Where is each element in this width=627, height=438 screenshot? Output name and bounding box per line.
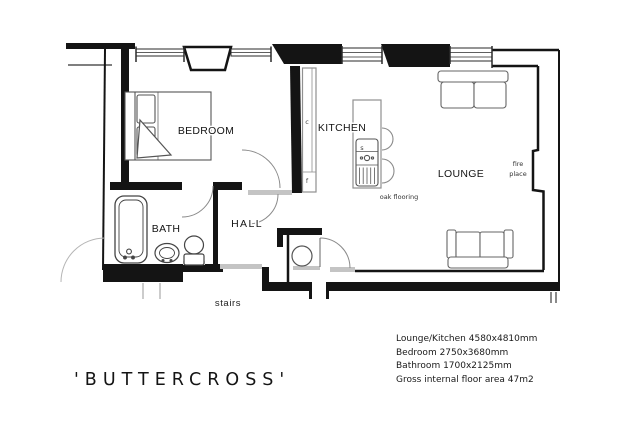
floor-plan-canvas: BEDROOM KITCHEN LOUNGE BATH HALL stairs … <box>0 0 627 438</box>
bathtub-drain <box>127 249 132 254</box>
bedroom-door-swing <box>242 150 280 188</box>
lobby-door-swing <box>320 238 350 268</box>
room-label-bedroom: BEDROOM <box>178 125 234 137</box>
bath-door-swing <box>182 186 213 217</box>
bathtub-tap <box>124 256 127 259</box>
wall-lobby-step <box>277 235 283 247</box>
counter-code-c: c <box>305 118 309 126</box>
sofa-bottom <box>447 230 513 268</box>
breakfast-stool <box>382 159 394 183</box>
dimension-notes: Lounge/Kitchen 4580x4810mm Bedroom 2750x… <box>396 333 537 387</box>
room-label-kitchen: KITCHEN <box>318 122 366 134</box>
bathtub-tap <box>132 256 135 259</box>
stairs-threshold <box>220 264 262 269</box>
wall-bath-hall-divider <box>213 190 218 267</box>
sofa-cushion <box>474 82 506 108</box>
sofa-cushion <box>480 232 504 258</box>
room-label-hall: HALL <box>231 218 263 230</box>
stairs-label: stairs <box>215 298 241 309</box>
exterior-door-swing <box>61 238 105 282</box>
lounge-window <box>450 48 492 61</box>
note-line: Bathroom 1700x2125mm <box>396 360 537 374</box>
basin-tap <box>162 260 164 262</box>
wall-bottom-right <box>326 282 560 291</box>
fireplace-label-line1: fire <box>513 160 524 168</box>
kitchen-window <box>342 48 382 61</box>
sofa-top <box>438 71 508 108</box>
toilet-pan <box>185 236 204 254</box>
wall-left-outer <box>103 49 105 270</box>
wall-stub-bedroom-bottom <box>213 182 242 190</box>
wall-bath-top <box>110 182 182 190</box>
hall-kitchen-threshold <box>248 190 292 195</box>
room-label-lounge: LOUNGE <box>438 168 484 180</box>
sink-tap <box>371 157 373 159</box>
lobby-lounge-threshold <box>330 267 355 272</box>
wall-top-party <box>66 43 135 49</box>
basin-tap <box>170 260 172 262</box>
wash-basin-bowl <box>160 248 175 259</box>
room-label-bath: BATH <box>152 223 180 235</box>
bathtub-inner <box>119 200 143 257</box>
toilet-cistern <box>184 254 204 265</box>
oak-flooring-label: oak flooring <box>380 193 419 201</box>
sofa-arm <box>447 230 456 258</box>
note-line: Bedroom 2750x3680mm <box>396 347 537 361</box>
kitchen-counter <box>303 68 317 192</box>
sink-faucet <box>364 155 369 160</box>
sofa-back <box>448 257 508 268</box>
appliance-circle <box>292 246 312 266</box>
sink-tap <box>360 157 362 159</box>
wall-pier-bedroom-bay <box>184 47 231 70</box>
wall-right-inner-fireplace <box>533 66 544 270</box>
sofa-cushion <box>441 82 474 108</box>
breakfast-stool <box>382 128 393 150</box>
wall-bottom-left <box>262 282 312 291</box>
plan-title: 'BUTTERCROSS' <box>74 370 290 390</box>
note-line: Lounge/Kitchen 4580x4810mm <box>396 333 537 347</box>
wall-top-mid <box>272 44 342 64</box>
wall-pier-kitchen-lounge <box>381 44 450 67</box>
fireplace-label-line2: place <box>509 170 527 178</box>
wall-bath-bottom <box>103 264 223 272</box>
sofa-arm <box>504 230 513 258</box>
sofa-back <box>438 71 508 82</box>
wall-exterior-step <box>103 272 183 282</box>
wall-lobby-top <box>277 228 322 235</box>
lobby-threshold <box>293 266 320 270</box>
wall-hall-corner-stub <box>262 267 269 282</box>
note-line: Gross internal floor area 47m2 <box>396 374 537 388</box>
wall-bedroom-kitchen-divider <box>290 66 302 193</box>
sofa-cushion <box>456 232 480 258</box>
